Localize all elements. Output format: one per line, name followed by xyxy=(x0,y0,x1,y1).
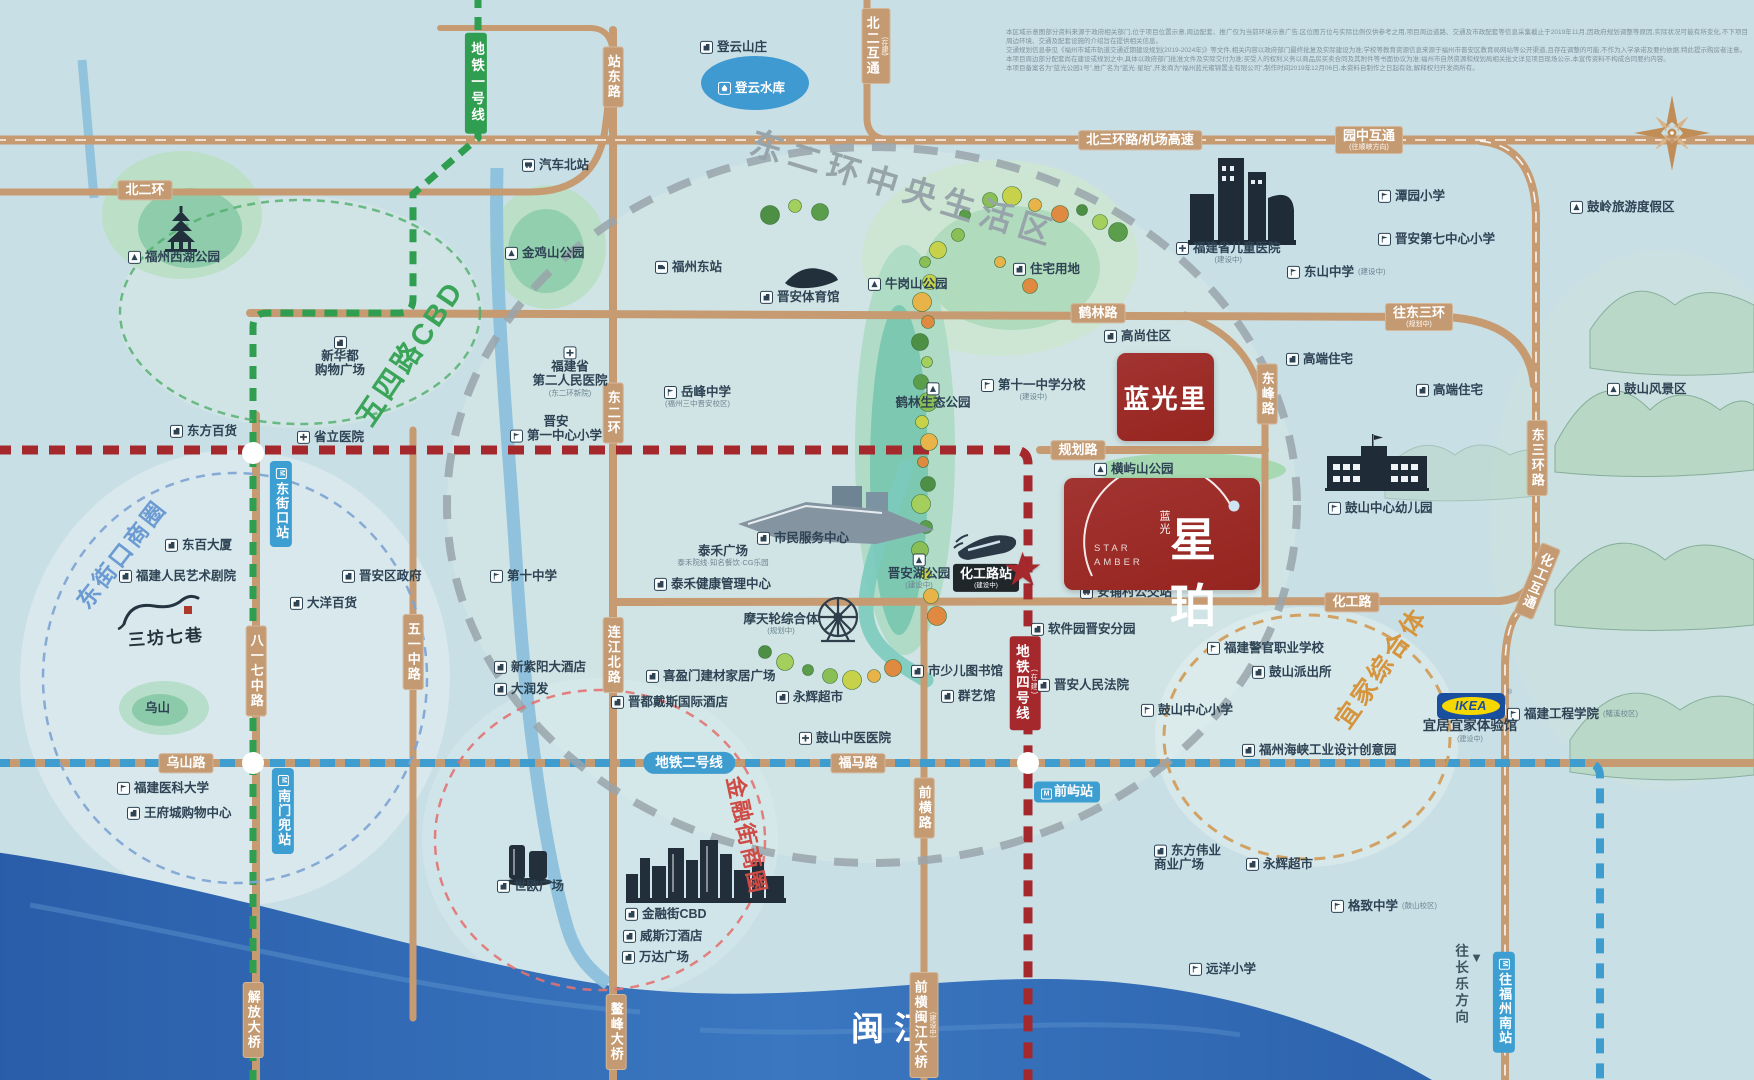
building-icon xyxy=(290,597,303,610)
poi-text-row: 晋安体育馆 xyxy=(760,290,840,304)
road-subtitle: (规划中) xyxy=(1393,321,1445,329)
poi-fujian-medical-univ: 福建医科大学 xyxy=(117,781,209,795)
poi-label: 购物广场 xyxy=(315,364,365,378)
poi-wangfucheng-mall: 王府城购物中心 xyxy=(127,806,232,820)
poi-text-row: 福建工程学院(鳝溪校区) xyxy=(1507,707,1638,721)
road-name: 东三环路 xyxy=(1530,428,1545,488)
mountain-icon xyxy=(128,251,141,264)
metro-line-name: 地铁一号线 xyxy=(469,42,484,125)
poi-subtitle: (建设中) xyxy=(981,393,1086,402)
poi-text-row: 喜盈门建材家居广场 xyxy=(646,669,776,683)
poi-label: 第二人民医院 xyxy=(532,374,607,388)
metro-label-line-4: 地铁四号线(在建) xyxy=(1010,636,1041,730)
poi-text-row: 晋都戴斯国际酒店 xyxy=(611,695,728,709)
poi-dongfang-weiye: 东方伟业商业广场 xyxy=(1154,844,1221,873)
poi-text-row: 市民服务中心 xyxy=(757,531,849,545)
building-icon xyxy=(611,696,624,709)
poi-xinhuadu-mall: 新华都购物广场 xyxy=(315,336,365,378)
poi-label: 鼓山中医医院 xyxy=(816,731,891,745)
building-icon xyxy=(1242,744,1255,757)
ikea-oval: IKEA xyxy=(1442,697,1500,715)
poi-text-row: 高尚住区 xyxy=(1104,329,1171,343)
building-icon xyxy=(170,425,183,438)
poi-text-row: 东百大厦 xyxy=(165,538,232,552)
poi-text-row: 大洋百货 xyxy=(290,596,357,610)
poi-gaoduan-zhuzhai-2: 高端住宅 xyxy=(1416,383,1483,397)
school-icon xyxy=(1328,502,1341,515)
school-icon xyxy=(664,386,677,399)
poi-prov-2nd-hospital: 福建省第二人民医院(东二环新院) xyxy=(532,346,607,397)
building-icon xyxy=(700,41,713,54)
road-label-lianjiangbei-road: 连江北路 xyxy=(603,617,624,693)
road-name: 鹤林路 xyxy=(1078,305,1117,320)
poi-renmin-art-theatre: 福建人民艺术剧院 xyxy=(119,569,236,583)
poi-taihe-health-center: 泰禾健康管理中心 xyxy=(654,577,771,591)
poi-text-row: 福州西湖公园 xyxy=(128,250,220,264)
poi-westin-hotel: 威斯汀酒店 xyxy=(623,929,703,943)
district-dongerhuan-living-area: 东二环中央生活区 xyxy=(745,116,1065,255)
poi-text-row: 登云山庄 xyxy=(700,40,767,54)
poi-label: 喜盈门建材家居广场 xyxy=(663,669,776,683)
building-icon xyxy=(622,951,635,964)
poi-text-row: 第十中学 xyxy=(490,569,557,583)
road-subtitle: (往顺峡方向) xyxy=(1343,144,1395,152)
poi-text-row: 新紫阳大酒店 xyxy=(494,660,586,674)
building-icon xyxy=(1286,353,1299,366)
poi-text-row: 第十一中学分校 xyxy=(981,378,1086,392)
poi-jinan-district-govt: 晋安区政府 xyxy=(342,569,422,583)
building-icon xyxy=(1416,384,1429,397)
building-icon xyxy=(911,665,924,678)
poi-label: 远洋小学 xyxy=(1206,962,1256,976)
school-icon xyxy=(117,782,130,795)
poi-label: 软件园晋安分园 xyxy=(1048,622,1136,636)
school-icon xyxy=(1378,233,1391,246)
poi-label: 第一中心小学 xyxy=(527,429,602,443)
poi-label: 第十中学 xyxy=(507,569,557,583)
poi-label: 永辉超市 xyxy=(793,690,843,704)
poi-tanyuan-primary: 潭园小学 xyxy=(1378,189,1445,203)
poi-taihe-plaza: 泰禾广场泰禾院线·知名餐饮·CG乐园 xyxy=(677,544,768,568)
road-label-zhandong-road: 站东路 xyxy=(603,47,624,108)
metro-line-name: 地铁二号线 xyxy=(655,755,723,770)
poi-label: 鼓岭旅游度假区 xyxy=(1587,200,1675,214)
school-icon xyxy=(981,379,994,392)
poi-text-row: 泰禾健康管理中心 xyxy=(654,577,771,591)
poi-text-row: 福建医科大学 xyxy=(117,781,209,795)
road-label-qianheng-minjiang-bridge: 前横闽江大桥(建设中) xyxy=(910,972,939,1078)
poi-label: 泰禾广场 xyxy=(698,544,748,558)
poi-label: 横屿山公园 xyxy=(1111,462,1174,476)
road-label-huagong-road: 化工路 xyxy=(1324,592,1379,612)
poi-subtitle: (规划中) xyxy=(743,627,818,636)
road-subtitle: (建设中) xyxy=(928,980,936,1070)
poi-dengyun-reservoir: 登云水库 xyxy=(718,81,785,95)
poi-label: 金鸡山公园 xyxy=(522,246,585,260)
poi-haixia-design-park: 福州海峡工业设计创意园 xyxy=(1242,743,1397,757)
building-icon xyxy=(494,661,507,674)
road-name: 八一七中路 xyxy=(249,634,264,709)
poi-subtitle: (鳝溪校区) xyxy=(1603,710,1638,719)
station-dongjiekou[interactable]: M东街口站 xyxy=(270,461,292,547)
road-label-beierhuan: 北二环 xyxy=(117,180,172,200)
building-icon xyxy=(497,880,510,893)
poi-subtitle: (建设中) xyxy=(1176,256,1281,265)
road-label-fuma-road: 福马路 xyxy=(830,753,885,773)
poi-qiche-beizhan: 汽车北站 xyxy=(522,158,589,172)
road-name: 东峰路 xyxy=(1260,372,1275,417)
poi-text-row: 鼓山中心小学 xyxy=(1141,703,1233,717)
poi-text-row: 牛岗山公园 xyxy=(868,277,948,291)
metro-icon: M xyxy=(1499,959,1510,970)
poi-icon-row xyxy=(888,554,951,567)
poi-label: 晋都戴斯国际酒店 xyxy=(628,695,728,709)
poi-label: 晋安区政府 xyxy=(359,569,422,583)
building-icon xyxy=(342,570,355,583)
poi-label: 新紫阳大酒店 xyxy=(511,660,586,674)
poi-label: 世欧广场 xyxy=(514,879,564,893)
poi-subtitle: (福州三中晋安校区) xyxy=(664,400,731,409)
poi-text-row: 鼓山中医医院 xyxy=(799,731,891,745)
building-icon xyxy=(1037,679,1050,692)
poi-label: 鹤林生态公园 xyxy=(895,395,970,409)
poi-label: 晋安人民法院 xyxy=(1054,678,1129,692)
poi-jinan-no1-primary: 晋安第一中心小学 xyxy=(510,415,602,444)
poi-text-row: 金鸡山公园 xyxy=(505,246,585,260)
poi-jinan-court: 晋安人民法院 xyxy=(1037,678,1129,692)
road-name: 北二环 xyxy=(125,182,164,197)
poi-text-row: 鼓山风景区 xyxy=(1607,382,1687,396)
poi-citizen-service-center: 市民服务中心 xyxy=(757,531,849,545)
road-name: 前横路 xyxy=(917,786,932,831)
poi-yonghui-market-1: 永辉超市 xyxy=(776,690,843,704)
school-icon xyxy=(1287,266,1300,279)
road-name: 乌山路 xyxy=(166,755,205,770)
poi-yonghui-market-2: 永辉超市 xyxy=(1246,857,1313,871)
poi-label: 福州海峡工业设计创意园 xyxy=(1259,743,1397,757)
poi-text-row: 福建省 xyxy=(532,359,607,373)
poi-no11-middle-branch: 第十一中学分校(建设中) xyxy=(981,378,1086,402)
blueray-li-project-box[interactable]: 蓝光里 xyxy=(1117,353,1214,441)
building-icon xyxy=(1246,858,1259,871)
station-name: 前屿站 xyxy=(1054,784,1093,799)
poi-label: 东方百货 xyxy=(187,424,237,438)
poi-text-row: 大润发 xyxy=(494,682,549,696)
hospital-icon xyxy=(1176,242,1189,255)
poi-label: 汽车北站 xyxy=(539,158,589,172)
building-icon xyxy=(757,532,770,545)
poi-text-row: 摩天轮综合体 xyxy=(743,612,818,626)
hospital-icon xyxy=(297,431,310,444)
poi-text-row: 软件园晋安分园 xyxy=(1031,622,1136,636)
road-name: 鳌峰大桥 xyxy=(609,1002,624,1062)
poi-label: 省立医院 xyxy=(314,430,364,444)
poi-text-row: 王府城购物中心 xyxy=(127,806,232,820)
station-qianyu[interactable]: M前屿站 xyxy=(1034,782,1100,803)
poi-label: 威斯汀酒店 xyxy=(640,929,703,943)
poi-children-library: 市少儿图书馆 xyxy=(911,664,1003,678)
poi-text-row: 商业广场 xyxy=(1154,858,1221,872)
poi-text-row: 福建省儿童医院 xyxy=(1176,241,1281,255)
poi-qunyi-hall: 群艺馆 xyxy=(941,689,996,703)
school-icon xyxy=(1189,963,1202,976)
station-to-fuzhou-south[interactable]: M往福州南站 xyxy=(1493,952,1515,1053)
poi-ferris-wheel-complex: 摩天轮综合体(规划中) xyxy=(743,612,818,636)
poi-label: 东方伟业 xyxy=(1171,844,1221,858)
poi-text-row: 泰禾广场 xyxy=(677,544,768,558)
road-label-dongsanhuan-road: 东三环路 xyxy=(1527,420,1548,496)
poi-text-row: 晋安湖公园 xyxy=(888,567,951,581)
building-icon xyxy=(127,807,140,820)
poi-label: 鼓山中心小学 xyxy=(1158,703,1233,717)
poi-text-row: 高端住宅 xyxy=(1416,383,1483,397)
poi-subtitle: (鼓山校区) xyxy=(1402,902,1437,911)
poi-label: 福建省儿童医院 xyxy=(1193,241,1281,255)
road-label-huagong-interchange: 化工互通 xyxy=(1513,542,1561,620)
poi-label: 登云山庄 xyxy=(717,40,767,54)
poi-label: 福州东站 xyxy=(672,260,722,274)
poi-text-row: 威斯汀酒店 xyxy=(623,929,703,943)
poi-label: 金融街CBD xyxy=(642,907,707,921)
poi-label: 摩天轮综合体 xyxy=(743,612,818,626)
poi-helin-eco-park: 鹤林生态公园 xyxy=(895,382,970,409)
poi-text-row: 岳峰中学 xyxy=(664,385,731,399)
ikea-experience-hall-label: 宜居宜家体验馆 (建设中) xyxy=(1423,714,1518,744)
poi-gushan-tcm-hospital: 鼓山中医医院 xyxy=(799,731,891,745)
poi-gaoduan-zhuzhai-1: 高端住宅 xyxy=(1286,352,1353,366)
road-name: 北三环路/机场高速 xyxy=(1086,132,1194,147)
road-name: 福马路 xyxy=(838,755,877,770)
poi-label: 东百大厦 xyxy=(182,538,232,552)
poi-subtitle: 泰禾院线·知名餐饮·CG乐园 xyxy=(677,559,768,568)
poi-label: 市少儿图书馆 xyxy=(928,664,1003,678)
poi-label: 商业广场 xyxy=(1154,858,1204,872)
road-label-yuanzhong-interchange: 园中互通(往顺峡方向) xyxy=(1335,126,1403,154)
poi-gushan-police-station: 鼓山派出所 xyxy=(1252,665,1332,679)
poi-text-row: 东山中学(建设中) xyxy=(1287,265,1386,279)
poi-label: 福建工程学院 xyxy=(1524,707,1599,721)
mountain-icon xyxy=(1570,201,1583,214)
metro-icon: M xyxy=(276,468,287,479)
poi-gushan-kindergarten: 鼓山中心幼儿园 xyxy=(1328,501,1433,515)
poi-label: 万达广场 xyxy=(639,950,689,964)
school-icon xyxy=(1141,704,1154,717)
district-jinrongjie-business-circle: 金融街商圈 xyxy=(720,773,776,897)
building-icon xyxy=(623,930,636,943)
star-amber-english: STARAMBER xyxy=(1094,542,1143,571)
poi-text-row: 鹤林生态公园 xyxy=(895,395,970,409)
poi-jinan-no7-primary: 晋安第七中心小学 xyxy=(1378,232,1495,246)
metro-line-name: 地铁四号线 xyxy=(1014,644,1029,722)
poi-children-hospital: 福建省儿童医院(建设中) xyxy=(1176,241,1281,265)
building-icon xyxy=(1154,844,1167,857)
road-name: 东二环 xyxy=(606,391,621,436)
school-icon xyxy=(510,430,523,443)
poi-software-park-jinan: 软件园晋安分园 xyxy=(1031,622,1136,636)
poi-text-row: 福建人民艺术剧院 xyxy=(119,569,236,583)
poi-label: 晋安第七中心小学 xyxy=(1395,232,1495,246)
poi-provincial-hospital: 省立医院 xyxy=(297,430,364,444)
poi-label: 乌山 xyxy=(145,701,170,715)
building-icon xyxy=(1013,263,1026,276)
star-amber-project-box[interactable]: STARAMBER 蓝光 星珀 xyxy=(1064,478,1260,590)
labels-layer: 登云山庄登云水库汽车北站福州东站金鸡山公园福州西湖公园晋安体育馆牛岗山公园住宅用… xyxy=(0,0,1754,1080)
poi-label: 住宅用地 xyxy=(1030,262,1080,276)
road-name: 规划路 xyxy=(1058,442,1097,457)
poi-dongshan-middle: 东山中学(建设中) xyxy=(1287,265,1386,279)
school-icon xyxy=(490,570,503,583)
road-label-qianheng-road: 前横路 xyxy=(914,778,935,839)
poi-text-row: 万达广场 xyxy=(622,950,689,964)
road-label-to-dongsanhuan: 往东三环(规划中) xyxy=(1385,303,1453,331)
station-name: 东街口站 xyxy=(274,482,289,540)
poi-xiyingmen-plaza: 喜盈门建材家居广场 xyxy=(646,669,776,683)
poi-dengyun-villa: 登云山庄 xyxy=(700,40,767,54)
poi-subtitle: (建设中) xyxy=(888,582,951,591)
bus-icon xyxy=(522,159,535,172)
poi-text-row: 福州东站 xyxy=(655,260,722,274)
building-icon xyxy=(776,691,789,704)
poi-label: 高端住宅 xyxy=(1433,383,1483,397)
poi-xihu-park: 福州西湖公园 xyxy=(128,250,220,264)
poi-yuefeng-middle: 岳峰中学(福州三中晋安校区) xyxy=(664,385,731,409)
poi-gezhi-middle: 格致中学(鼓山校区) xyxy=(1331,899,1437,913)
poi-jinan-stadium: 晋安体育馆 xyxy=(760,290,840,304)
poi-zhuzhai-land: 住宅用地 xyxy=(1013,262,1080,276)
poi-label: 福建人民艺术剧院 xyxy=(136,569,236,583)
road-label-aofeng-bridge: 鳌峰大桥 xyxy=(606,994,627,1070)
road-label-wuyizhong-road: 五一中路 xyxy=(403,614,424,690)
mountain-icon xyxy=(1607,383,1620,396)
road-name: 五一中路 xyxy=(406,622,421,682)
building-icon xyxy=(760,291,773,304)
location-map: 登云山庄登云水库汽车北站福州东站金鸡山公园福州西湖公园晋安体育馆牛岗山公园住宅用… xyxy=(0,0,1754,1080)
road-label-beier-interchange: 北二互通(在建) xyxy=(862,8,891,84)
poi-fujian-univ-of-tech: 福建工程学院(鳝溪校区) xyxy=(1507,707,1638,721)
poi-jindu-days-hotel: 晋都戴斯国际酒店 xyxy=(611,695,728,709)
road-label-guihua-road: 规划路 xyxy=(1050,440,1105,460)
poi-text-row: 金融街CBD xyxy=(625,907,707,921)
poi-no10-middle: 第十中学 xyxy=(490,569,557,583)
station-nanmendou[interactable]: M南门兜站 xyxy=(272,768,294,854)
metro-label-line-2: 地铁二号线 xyxy=(643,752,735,774)
poi-label: 王府城购物中心 xyxy=(144,806,232,820)
building-icon xyxy=(941,690,954,703)
poi-text-row: 住宅用地 xyxy=(1013,262,1080,276)
poi-police-vocational-school: 福建警官职业学校 xyxy=(1207,641,1324,655)
mountain-icon xyxy=(505,247,518,260)
building-icon xyxy=(625,908,638,921)
poi-text-row: 第一中心小学 xyxy=(510,429,602,443)
poi-icon-row xyxy=(315,336,365,349)
road-label-bayiqizhong-road: 八一七中路 xyxy=(246,626,267,717)
poi-shiou-plaza: 世欧广场 xyxy=(497,879,564,893)
poi-text-row: 省立医院 xyxy=(297,430,364,444)
building-icon xyxy=(494,683,507,696)
poi-label: 市民服务中心 xyxy=(774,531,849,545)
poi-gushan-scenic: 鼓山风景区 xyxy=(1607,382,1687,396)
poi-label: 福建警官职业学校 xyxy=(1224,641,1324,655)
poi-label: 格致中学 xyxy=(1348,899,1398,913)
poi-label: 永辉超市 xyxy=(1263,857,1313,871)
poi-text-row: 晋安区政府 xyxy=(342,569,422,583)
district-yijia-complex: 宜家综合体 xyxy=(1325,599,1435,734)
poi-subtitle: (建设中) xyxy=(1358,268,1386,277)
poi-text-row: 福州海峡工业设计创意园 xyxy=(1242,743,1397,757)
poi-text-row: 潭园小学 xyxy=(1378,189,1445,203)
poi-text-row: 登云水库 xyxy=(718,81,785,95)
school-icon xyxy=(1331,900,1344,913)
poi-yuanyang-primary: 远洋小学 xyxy=(1189,962,1256,976)
poi-text-row: 鼓岭旅游度假区 xyxy=(1570,200,1675,214)
station-name: 南门兜站 xyxy=(276,789,291,847)
school-icon xyxy=(1378,190,1391,203)
train-icon xyxy=(655,261,668,274)
poi-text-row: 新华都 xyxy=(315,349,365,363)
poi-text-row: 晋安 xyxy=(510,415,602,429)
station-name: 往福州南站 xyxy=(1497,973,1512,1046)
poi-jinjishan-park: 金鸡山公园 xyxy=(505,246,585,260)
road-label-jiefang-bridge: 解放大桥 xyxy=(243,982,264,1058)
poi-dayang-dept-store: 大洋百货 xyxy=(290,596,357,610)
building-icon xyxy=(165,539,178,552)
poi-fuzhou-east-station: 福州东站 xyxy=(655,260,722,274)
road-label-helin-road: 鹤林路 xyxy=(1070,303,1125,323)
metro-label-line-1: 地铁一号线 xyxy=(465,33,487,134)
poi-icon-row xyxy=(895,382,970,395)
mountain-icon xyxy=(912,554,925,567)
poi-text-row: 第二人民医院 xyxy=(532,374,607,388)
road-name: 前横闽江大桥 xyxy=(913,980,928,1070)
metro-icon: M xyxy=(278,775,289,786)
poi-wushan-hill: 乌山 xyxy=(145,701,170,715)
poi-label: 晋安湖公园 xyxy=(888,567,951,581)
poi-label: 东山中学 xyxy=(1304,265,1354,279)
hospital-icon xyxy=(799,732,812,745)
poi-icon-row xyxy=(532,346,607,359)
poi-label: 群艺馆 xyxy=(958,689,996,703)
poi-dongbai-building: 东百大厦 xyxy=(165,538,232,552)
poi-label: 鼓山风景区 xyxy=(1624,382,1687,396)
poi-label: 登云水库 xyxy=(735,81,785,95)
road-name: 站东路 xyxy=(606,55,621,100)
poi-label: 晋安 xyxy=(543,415,568,429)
mountain-icon xyxy=(1094,463,1107,476)
poi-xinziyang-hotel: 新紫阳大酒店 xyxy=(494,660,586,674)
poi-label: 潭园小学 xyxy=(1395,189,1445,203)
poi-label: 鼓山中心幼儿园 xyxy=(1345,501,1433,515)
poi-label: 福州西湖公园 xyxy=(145,250,220,264)
poi-label: 大润发 xyxy=(511,682,549,696)
road-name: 解放大桥 xyxy=(246,990,261,1050)
poi-label: 福建省 xyxy=(551,359,589,373)
poi-label: 大洋百货 xyxy=(307,596,357,610)
poi-text-row: 汽车北站 xyxy=(522,158,589,172)
project-location-star: ★ xyxy=(1002,546,1043,592)
road-name: 化工互通 xyxy=(1519,550,1555,611)
poi-label: 晋安体育馆 xyxy=(777,290,840,304)
poi-text-row: 乌山 xyxy=(145,701,170,715)
poi-text-row: 群艺馆 xyxy=(941,689,996,703)
poi-guling-resort: 鼓岭旅游度假区 xyxy=(1570,200,1675,214)
poi-text-row: 鼓山中心幼儿园 xyxy=(1328,501,1433,515)
metro-icon: M xyxy=(1041,789,1052,800)
poi-text-row: 横屿山公园 xyxy=(1094,462,1174,476)
building-icon xyxy=(654,578,667,591)
poi-text-row: 格致中学(鼓山校区) xyxy=(1331,899,1437,913)
poi-label: 泰禾健康管理中心 xyxy=(671,577,771,591)
poi-subtitle: (东二环新院) xyxy=(532,389,607,398)
